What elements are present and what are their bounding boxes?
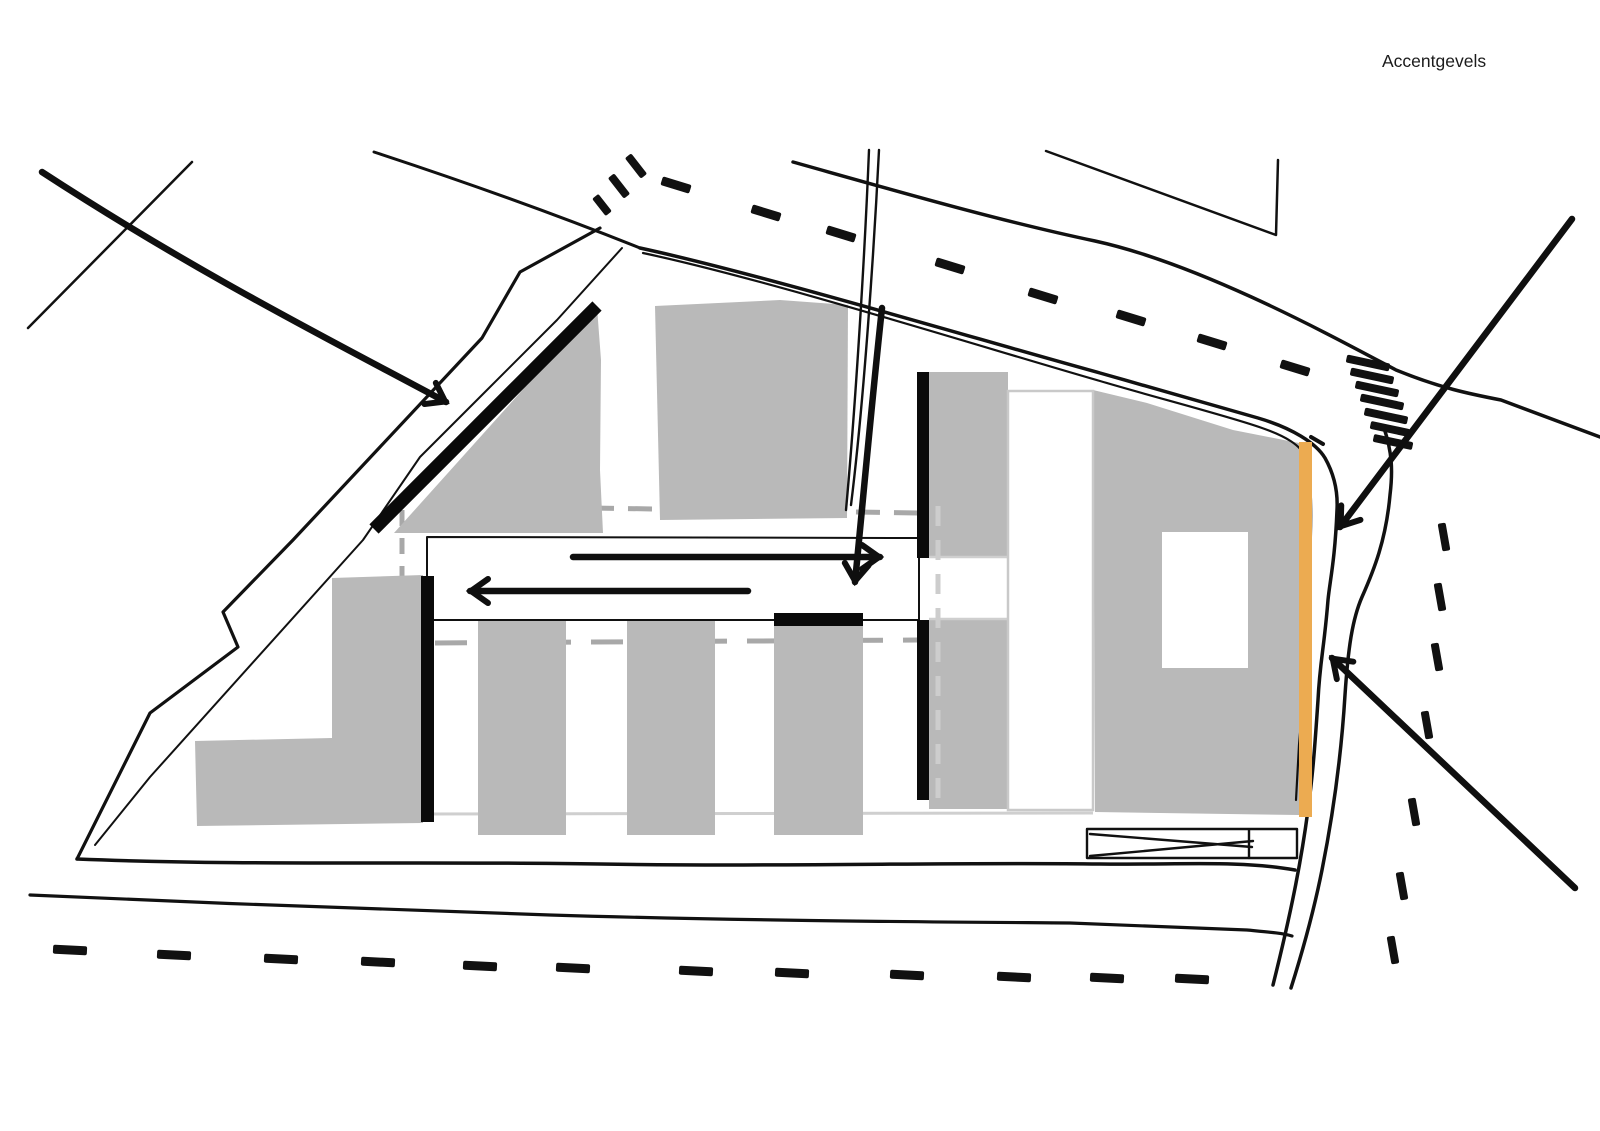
accent-facade-west — [421, 576, 434, 822]
road-dash — [890, 970, 924, 981]
road-dash — [264, 954, 298, 965]
road-dash — [556, 963, 590, 974]
accent-facade-east-upper — [917, 372, 929, 558]
site-plan-page: Accentgevels — [0, 0, 1600, 1131]
accent-facade-orange — [1299, 442, 1312, 817]
road-dash — [775, 968, 809, 979]
accent-facade-east-lower — [917, 620, 929, 800]
building-strip-block-lower — [929, 619, 1012, 809]
road-dash — [1175, 974, 1209, 985]
vacant-parcel — [1008, 391, 1093, 810]
label-accentgevels: Accentgevels — [1382, 51, 1486, 71]
building-top-middle-block — [655, 300, 848, 520]
building-row-block-2 — [627, 620, 715, 835]
building-row-block-1 — [478, 620, 566, 835]
road-dash — [679, 966, 713, 977]
road-dash — [53, 945, 87, 956]
site-plan-canvas: Accentgevels — [0, 0, 1600, 1131]
road-dash — [463, 961, 497, 972]
background — [0, 0, 1600, 1131]
accent-facade-center — [774, 613, 863, 626]
road-dash — [1090, 973, 1124, 984]
road-dash — [361, 957, 395, 968]
building-row-block-3 — [774, 620, 863, 835]
corridor-gap-through-strip — [929, 557, 1008, 619]
road-dash — [157, 950, 191, 961]
courtyard-notch — [1162, 532, 1248, 668]
road-dash — [997, 972, 1031, 983]
building-strip-block-upper — [929, 372, 1008, 557]
